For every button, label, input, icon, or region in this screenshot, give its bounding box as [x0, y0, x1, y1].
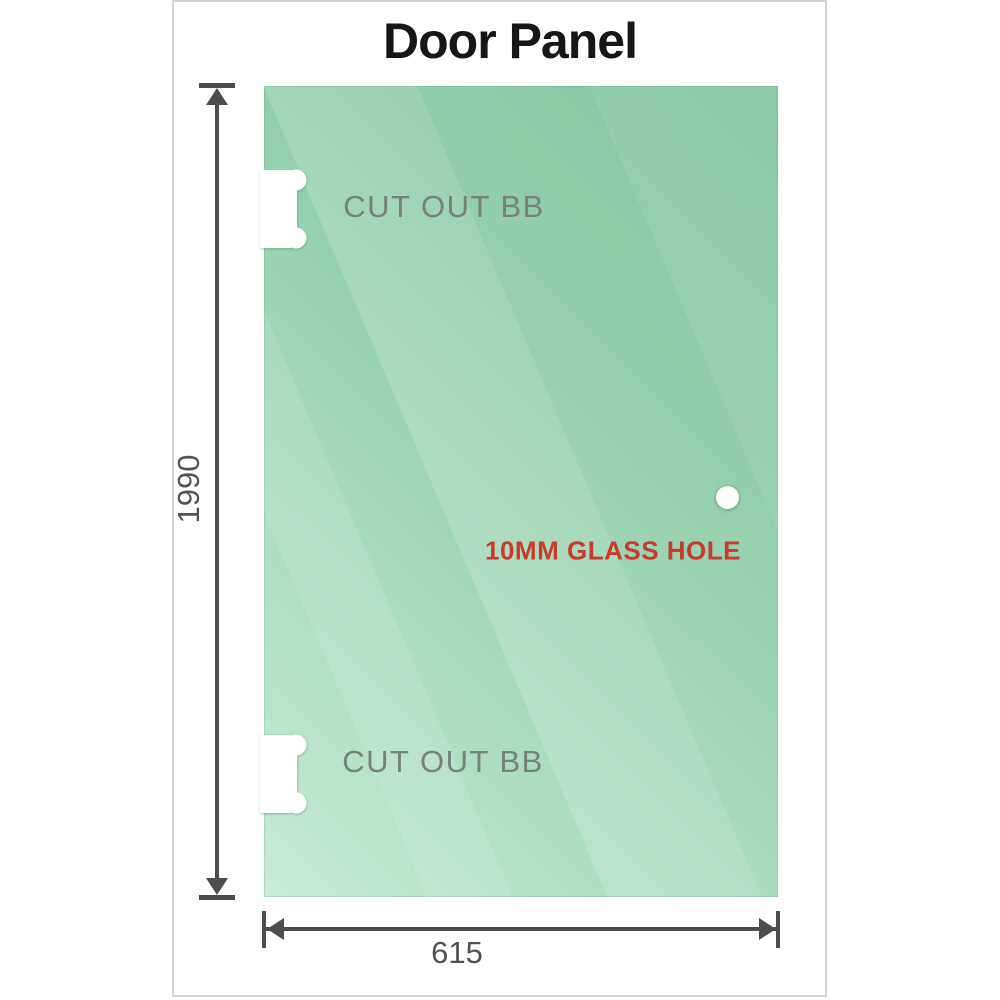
cutout-top-label: CUT OUT BB [343, 189, 545, 225]
arrow-left-icon [267, 918, 284, 940]
height-dim-bottom-cap [199, 895, 235, 900]
glass-hole [716, 486, 739, 509]
height-dim-label: 1990 [171, 455, 207, 524]
glass-hole-label: 10MM GLASS HOLE [485, 536, 741, 567]
arrow-down-icon [206, 878, 228, 895]
hinge-cutout-bottom [260, 732, 310, 816]
diagram-canvas: Door Panel CUT OUT BB CUT OUT BB 10 [0, 0, 1000, 1000]
hinge-cutout-top [260, 167, 310, 251]
width-dim-right-tick [776, 911, 780, 948]
height-dim-line [215, 92, 219, 892]
arrow-right-icon [759, 918, 776, 940]
arrow-up-icon [206, 88, 228, 105]
cutout-bottom-label: CUT OUT BB [342, 744, 544, 780]
page-title: Door Panel [383, 12, 637, 70]
width-dim-line [266, 927, 776, 931]
width-dim-label: 615 [431, 935, 483, 971]
